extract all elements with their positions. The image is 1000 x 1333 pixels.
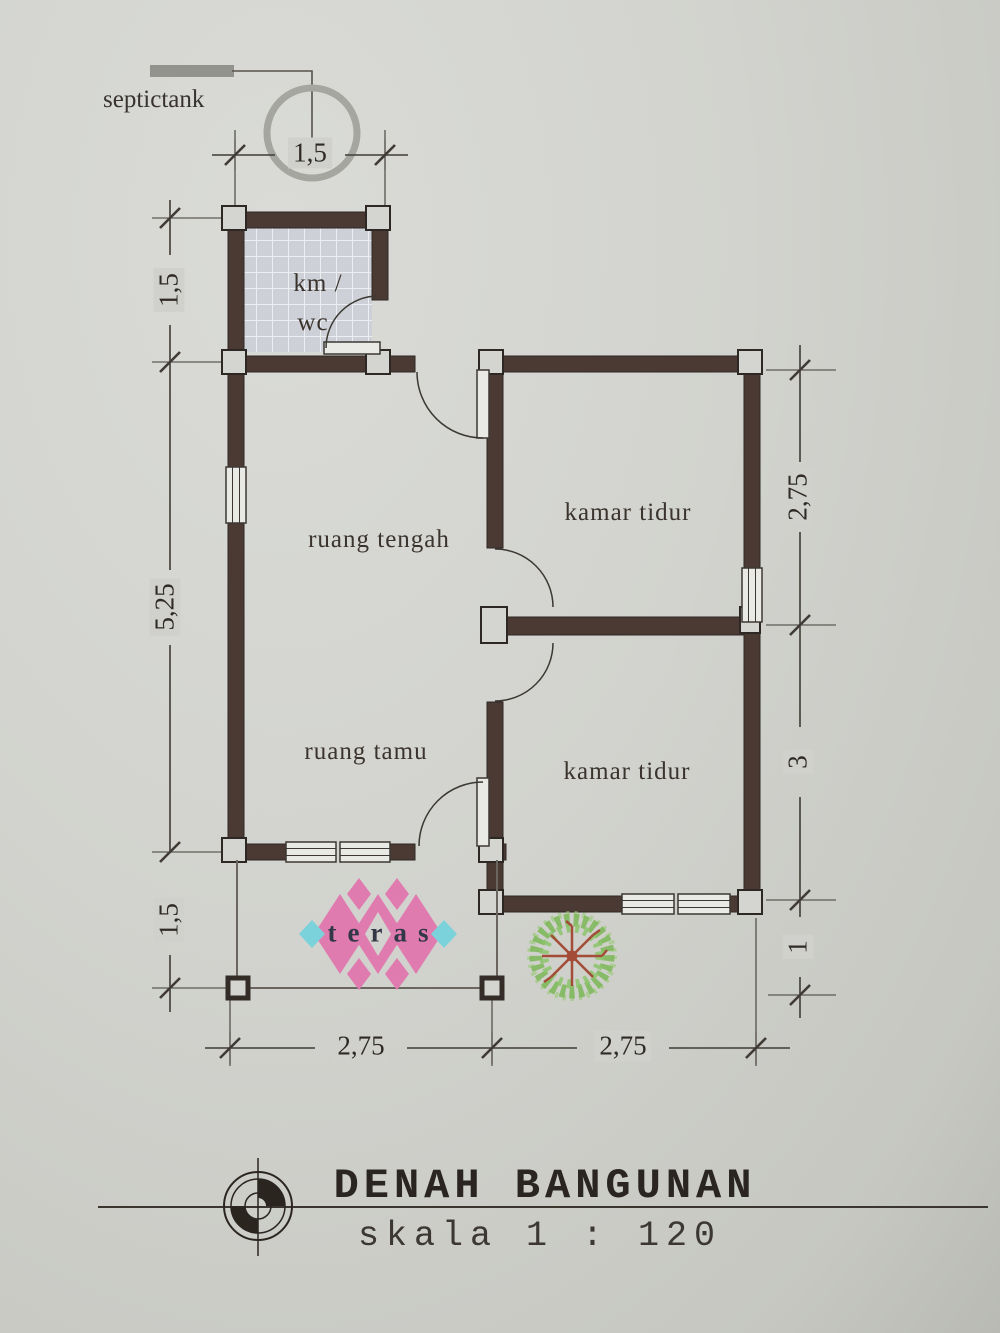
septictank-label: septictank: [103, 86, 204, 114]
dim-right-0: 2,75: [783, 468, 814, 525]
sheet-title: DENAH BANGUNAN: [334, 1162, 757, 1210]
room-label-kmwc-line1: km /: [293, 270, 342, 298]
wall-interior-horizontal: [503, 617, 744, 635]
wall-top-right-segment: [483, 356, 760, 372]
window-bedroom-1: [622, 894, 674, 914]
back-door-swing: [417, 372, 483, 438]
tree-symbol: [530, 914, 614, 998]
dim-left-1: 5,25: [150, 578, 181, 635]
dim-right-1: 3: [783, 750, 814, 774]
wall-right-upper: [744, 372, 760, 568]
back-door-leaf: [477, 370, 489, 438]
front-door-swing: [419, 782, 483, 846]
sheet-scale: skala 1 : 120: [358, 1216, 722, 1256]
wall-kmwc-top: [228, 212, 388, 228]
wall-kmwc-left: [228, 212, 244, 356]
window-bedroom-2: [678, 894, 730, 914]
room-label-teras: teras: [317, 918, 440, 949]
teras-column-left: [228, 978, 248, 998]
kmwc-door-leaf: [324, 342, 380, 354]
floor-plan-drawing: [0, 0, 1000, 1333]
dim-right: [766, 345, 836, 1018]
dim-top-value: 1,5: [288, 138, 332, 169]
bedroom2-door-swing: [495, 643, 553, 701]
dim-right-2: 1: [783, 935, 814, 959]
window-front-1: [286, 842, 336, 862]
wall-bedroom-bottom-left: [484, 896, 622, 912]
window-front-2: [340, 842, 390, 862]
room-label-ruang-tamu: ruang tamu: [304, 738, 427, 766]
bedroom1-door-swing: [495, 549, 553, 607]
wall-left-upper: [228, 372, 244, 467]
wall-front-mid: [390, 844, 415, 860]
room-label-kmwc-line2: wc: [297, 309, 328, 337]
room-label-kamar-tidur-bawah: kamar tidur: [564, 758, 691, 786]
wall-left-lower: [228, 523, 244, 844]
window-left-wall: [226, 467, 246, 523]
wall-right-lower: [744, 622, 760, 912]
dim-bottom-0: 2,75: [332, 1031, 389, 1062]
room-label-kamar-tidur-atas: kamar tidur: [565, 499, 692, 527]
septic-pipe: [150, 65, 234, 77]
floor-plan-sheet: septictank 1,5 1,5 5,25 1,5 2,75 3 1 2,7…: [0, 0, 1000, 1333]
room-label-ruang-tengah: ruang tengah: [308, 526, 450, 554]
teras-column-right: [482, 978, 502, 998]
window-right-wall: [742, 568, 762, 622]
front-door-leaf: [477, 778, 489, 846]
dim-left-0: 1,5: [154, 268, 185, 312]
dim-left-2: 1,5: [154, 898, 185, 942]
dim-bottom-1: 2,75: [594, 1031, 651, 1062]
